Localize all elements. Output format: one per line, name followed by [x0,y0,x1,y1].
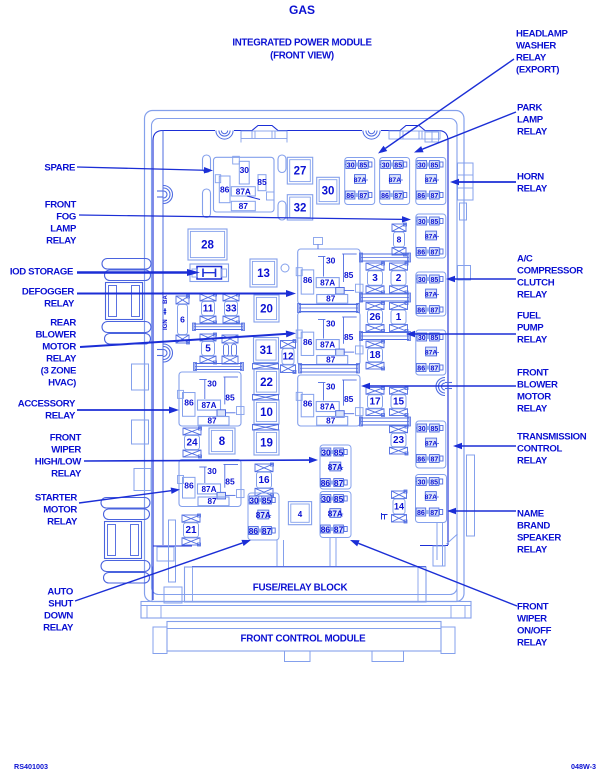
svg-text:30: 30 [326,381,336,391]
svg-text:RELAY: RELAY [44,299,75,310]
svg-text:5: 5 [205,344,211,355]
svg-text:86: 86 [220,185,230,195]
svg-text:RELAY: RELAY [517,184,548,195]
svg-text:23: 23 [393,435,405,446]
svg-text:REAR: REAR [50,318,76,329]
svg-text:33: 33 [225,304,237,315]
svg-text:86: 86 [184,481,194,491]
svg-text:FRONT CONTROL MODULE: FRONT CONTROL MODULE [241,634,367,645]
svg-text:(EXPORT): (EXPORT) [516,65,559,76]
svg-text:85: 85 [262,495,272,505]
svg-text:86: 86 [417,365,425,372]
svg-text:2: 2 [396,273,402,284]
svg-text:87: 87 [431,456,439,463]
svg-text:21: 21 [185,525,197,536]
svg-text:87: 87 [262,526,272,536]
svg-text:86: 86 [184,397,194,407]
svg-text:30: 30 [326,255,336,265]
svg-text:LAMP: LAMP [517,115,544,126]
svg-text:86: 86 [303,337,313,347]
svg-text:28: 28 [201,240,214,252]
svg-text:GAS: GAS [289,3,315,17]
svg-text:30: 30 [418,335,426,342]
svg-text:87: 87 [326,294,336,303]
svg-text:27: 27 [294,166,307,178]
svg-text:SPARE: SPARE [44,163,76,174]
svg-text:13: 13 [257,268,270,280]
svg-text:RELAY: RELAY [47,517,78,528]
svg-text:30: 30 [418,479,426,486]
svg-text:BRAND: BRAND [517,521,550,532]
svg-text:85: 85 [394,162,402,169]
svg-text:87A: 87A [328,509,343,518]
svg-text:86: 86 [381,193,389,200]
svg-text:16: 16 [258,475,270,486]
svg-text:RELAY: RELAY [46,236,77,247]
svg-text:RELAY: RELAY [517,456,548,467]
svg-text:HVAC): HVAC) [48,378,76,389]
svg-text:18: 18 [369,350,381,361]
svg-text:RELAY: RELAY [51,469,82,480]
svg-text:30: 30 [418,219,426,226]
svg-text:87A: 87A [425,291,438,298]
svg-text:FRONT: FRONT [45,200,77,211]
svg-text:87: 87 [431,249,439,256]
svg-text:87A: 87A [425,233,438,240]
svg-text:30: 30 [326,318,336,328]
svg-text:DOWN: DOWN [44,611,73,622]
svg-text:RELAY: RELAY [43,623,74,634]
svg-text:87: 87 [359,193,367,200]
svg-text:30: 30 [207,378,217,388]
svg-text:87A: 87A [320,341,335,350]
svg-text:IGN: IGN [163,319,169,330]
svg-text:87A: 87A [256,511,271,520]
svg-text:31: 31 [260,345,273,357]
svg-text:86: 86 [346,193,354,200]
svg-text:RELAY: RELAY [45,411,76,422]
svg-text:(FRONT VIEW): (FRONT VIEW) [270,51,334,62]
svg-text:RELAY: RELAY [517,127,548,138]
svg-text:WASHER: WASHER [516,41,556,52]
svg-text:DEFOGGER: DEFOGGER [22,287,75,298]
svg-text:FOG: FOG [56,212,76,223]
svg-text:FUSE/RELAY BLOCK: FUSE/RELAY BLOCK [253,583,348,594]
svg-text:SHUT: SHUT [48,599,73,610]
svg-text:048W-3: 048W-3 [571,762,596,771]
svg-text:85: 85 [344,270,354,280]
svg-text:85: 85 [431,426,439,433]
svg-text:87: 87 [239,201,249,211]
svg-text:FRONT: FRONT [517,368,549,379]
svg-text:32: 32 [294,202,307,214]
svg-text:86: 86 [417,456,425,463]
svg-text:86: 86 [321,478,331,488]
svg-text:87: 87 [326,416,336,425]
svg-text:HEADLAMP: HEADLAMP [516,29,569,40]
svg-text:MOTOR: MOTOR [43,505,77,516]
svg-text:15: 15 [393,397,405,408]
svg-text:CONTROL: CONTROL [517,444,562,455]
svg-text:87: 87 [207,416,217,425]
svg-text:85: 85 [257,177,267,187]
svg-text:85: 85 [334,447,344,457]
svg-text:ACCESSORY: ACCESSORY [18,399,76,410]
svg-text:87A: 87A [425,349,438,356]
svg-text:PUMP: PUMP [517,323,544,334]
svg-text:85: 85 [334,494,344,504]
svg-text:4: 4 [298,510,303,519]
svg-text:30: 30 [249,495,259,505]
svg-text:85: 85 [431,219,439,226]
svg-text:6: 6 [180,315,185,325]
svg-text:RS401003: RS401003 [14,762,48,771]
svg-text:RELAY: RELAY [517,335,548,346]
svg-text:86: 86 [249,526,259,536]
svg-text:85: 85 [431,162,439,169]
svg-text:HORN: HORN [517,172,544,183]
svg-text:RELAY: RELAY [516,53,547,64]
svg-text:3: 3 [372,273,378,284]
svg-text:30: 30 [321,447,331,457]
svg-text:87: 87 [207,497,217,506]
svg-text:85: 85 [359,162,367,169]
svg-text:86: 86 [303,399,313,409]
svg-text:26: 26 [369,312,381,323]
svg-text:30: 30 [240,165,250,175]
svg-text:87A: 87A [201,485,216,494]
svg-text:14: 14 [394,502,404,512]
svg-text:SPEAKER: SPEAKER [517,533,561,544]
svg-text:86: 86 [417,193,425,200]
svg-text:87: 87 [334,478,344,488]
svg-text:1: 1 [396,312,402,323]
svg-text:86: 86 [417,510,425,517]
svg-text:22: 22 [260,377,273,389]
svg-text:87: 87 [430,510,438,517]
svg-text:86: 86 [303,275,313,285]
svg-text:PARK: PARK [517,103,542,114]
svg-text:8: 8 [397,235,402,245]
svg-text:30: 30 [347,162,355,169]
svg-text:RELAY: RELAY [517,290,548,301]
svg-text:CLUTCH: CLUTCH [517,278,555,289]
svg-text:STARTER: STARTER [35,493,78,504]
svg-text:FRONT: FRONT [50,433,82,444]
svg-text:12: 12 [282,352,294,363]
svg-text:87: 87 [431,365,439,372]
svg-text:87A: 87A [236,188,251,197]
svg-text:RELAY: RELAY [517,545,548,556]
svg-text:17: 17 [369,397,381,408]
svg-text:24: 24 [186,438,198,449]
svg-text:HIGH/LOW: HIGH/LOW [35,457,83,468]
svg-text:30: 30 [418,426,426,433]
svg-text:85: 85 [431,277,439,284]
svg-text:A/C: A/C [517,254,533,265]
svg-text:(3 ZONE: (3 ZONE [41,366,77,377]
svg-text:TRANSMISSION: TRANSMISSION [517,432,587,443]
svg-text:19: 19 [260,438,273,450]
svg-text:30: 30 [418,162,426,169]
svg-text:87A: 87A [354,177,367,184]
svg-text:INTEGRATED POWER MODULE: INTEGRATED POWER MODULE [232,38,372,49]
svg-text:87A: 87A [425,494,438,501]
svg-text:NAME: NAME [517,509,545,520]
svg-text:87A: 87A [425,440,438,447]
svg-text:87A: 87A [389,177,402,184]
svg-text:85: 85 [225,476,235,486]
svg-text:86: 86 [417,249,425,256]
svg-text:87: 87 [394,193,402,200]
svg-text:85: 85 [344,394,354,404]
svg-text:87A: 87A [328,463,343,472]
svg-text:RELAY: RELAY [517,404,548,415]
svg-text:87A: 87A [320,403,335,412]
svg-text:COMPRESSOR: COMPRESSOR [517,266,583,277]
svg-text:8: 8 [219,436,226,448]
svg-text:87: 87 [431,307,439,314]
svg-text:RELAY: RELAY [517,638,548,649]
svg-text:WIPER: WIPER [51,445,81,456]
svg-text:BLOWER: BLOWER [517,380,558,391]
svg-text:30: 30 [418,277,426,284]
svg-text:30: 30 [207,466,217,476]
svg-text:87A: 87A [201,401,216,410]
svg-text:BLOWER: BLOWER [35,330,76,341]
svg-text:ON/OFF: ON/OFF [517,626,552,637]
svg-text:11: 11 [203,304,214,315]
svg-text:87A: 87A [425,177,438,184]
svg-text:86: 86 [321,524,331,534]
svg-text:20: 20 [260,304,273,316]
svg-text:MOTOR: MOTOR [42,342,76,353]
svg-text:FRONT: FRONT [517,602,549,613]
svg-text:RELAY: RELAY [46,354,77,365]
svg-text:10: 10 [260,407,273,419]
svg-text:85: 85 [344,332,354,342]
svg-text:86: 86 [417,307,425,314]
svg-text:FUEL: FUEL [517,311,541,322]
svg-text:30: 30 [321,494,331,504]
svg-text:87: 87 [326,355,336,364]
svg-text:LAMP: LAMP [50,224,77,235]
svg-text:MOTOR: MOTOR [517,392,551,403]
svg-text:AUTO: AUTO [47,587,73,598]
svg-text:85: 85 [431,335,439,342]
svg-text:87A: 87A [320,279,335,288]
svg-text:30: 30 [322,186,335,198]
svg-text:WIPER: WIPER [517,614,547,625]
svg-text:IOD STORAGE: IOD STORAGE [10,267,74,278]
svg-text:87: 87 [431,193,439,200]
svg-text:85: 85 [430,479,438,486]
svg-text:87: 87 [334,524,344,534]
svg-text:30: 30 [382,162,390,169]
svg-text:85: 85 [225,393,235,403]
